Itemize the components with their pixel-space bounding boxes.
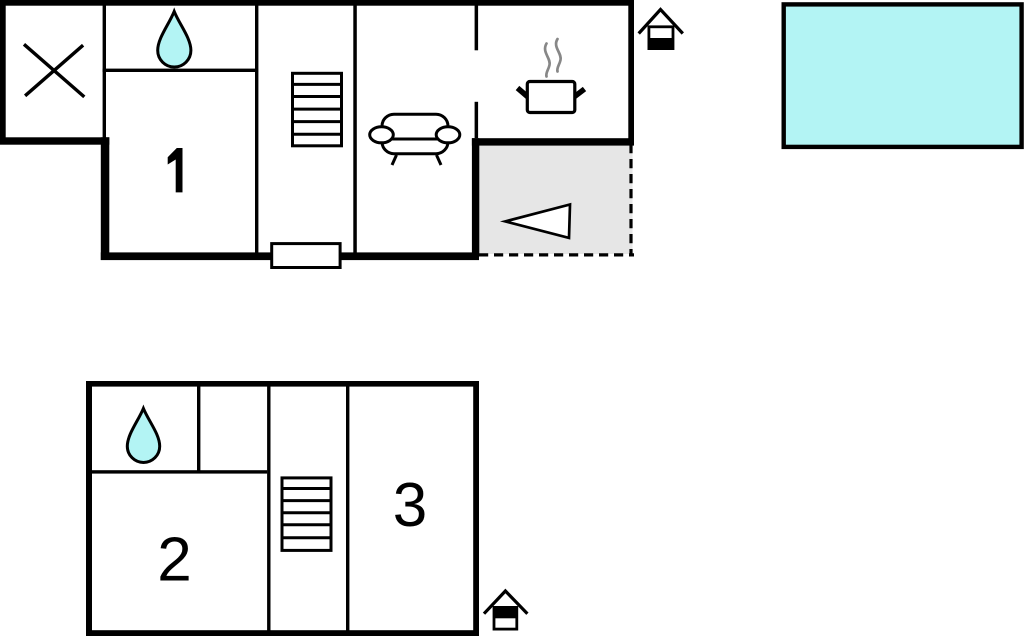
svg-text:3: 3 [393, 471, 427, 540]
svg-text:2: 2 [157, 525, 191, 594]
